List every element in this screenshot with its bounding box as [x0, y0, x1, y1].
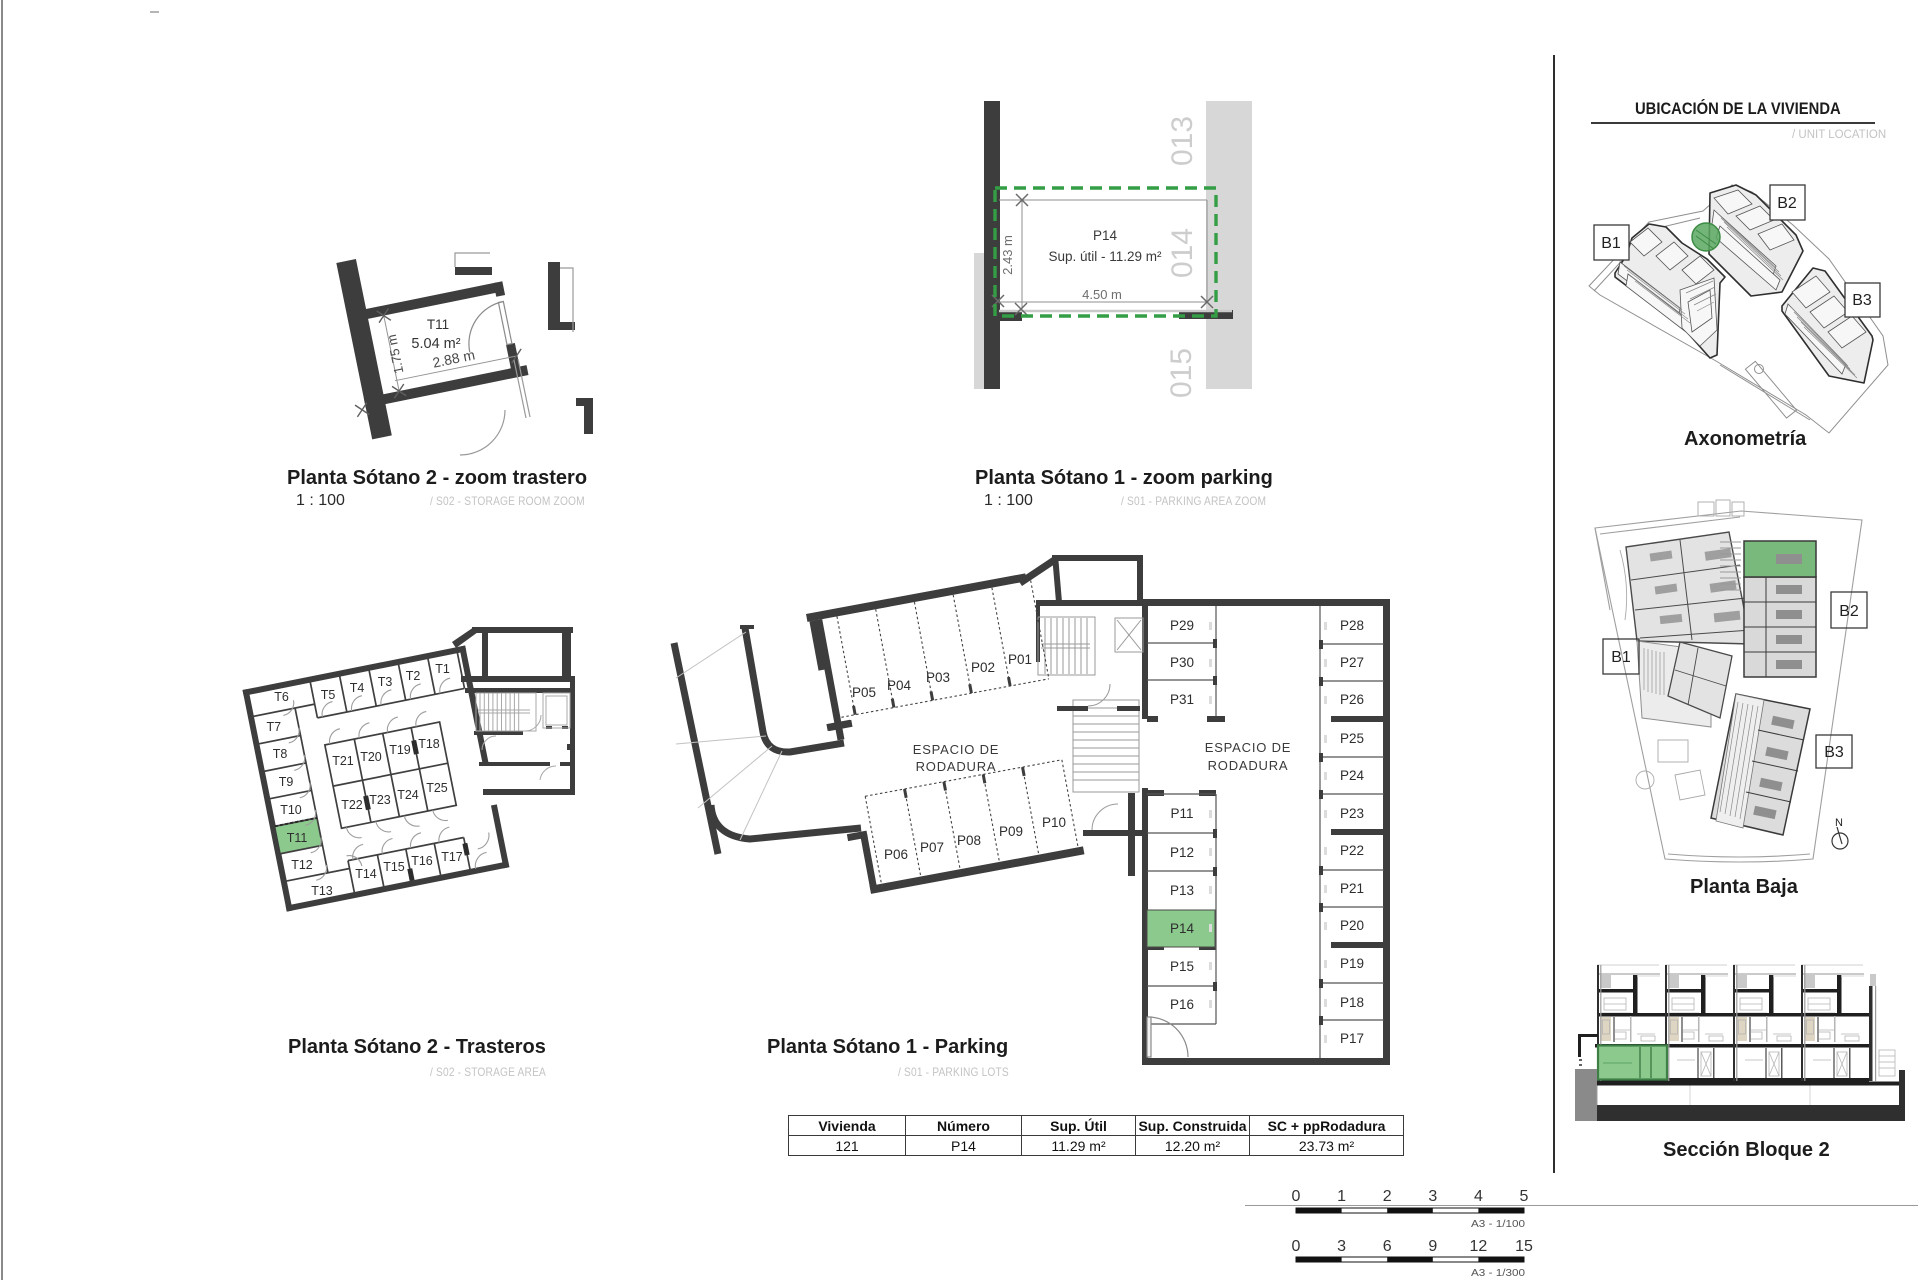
svg-text:T2: T2: [406, 669, 421, 683]
svg-text:5.04 m²: 5.04 m²: [411, 336, 460, 352]
svg-text:1.75 m: 1.75 m: [384, 333, 407, 375]
svg-text:P01: P01: [1008, 652, 1032, 667]
svg-text:T11: T11: [427, 317, 449, 332]
svg-text:P07: P07: [920, 840, 944, 855]
svg-text:T6: T6: [274, 690, 289, 704]
svg-text:T11: T11: [287, 831, 308, 845]
svg-text:P30: P30: [1170, 655, 1194, 670]
svg-text:12: 12: [1470, 1238, 1488, 1255]
svg-text:T22: T22: [341, 798, 363, 812]
svg-text:5: 5: [1520, 1188, 1529, 1205]
svg-text:T15: T15: [383, 860, 405, 874]
svg-text:P19: P19: [1340, 956, 1364, 971]
svg-text:2: 2: [1383, 1188, 1392, 1205]
svg-text:P23: P23: [1340, 806, 1364, 821]
svg-text:T10: T10: [280, 803, 302, 817]
svg-text:P14: P14: [1093, 228, 1118, 243]
svg-text:T5: T5: [321, 688, 336, 702]
svg-text:4.50 m: 4.50 m: [1082, 287, 1122, 302]
svg-text:P27: P27: [1340, 655, 1364, 670]
svg-text:T19: T19: [389, 743, 411, 757]
svg-text:P26: P26: [1340, 692, 1364, 707]
svg-text:P10: P10: [1042, 815, 1066, 830]
svg-text:T9: T9: [279, 775, 294, 789]
svg-text:A3 - 1/100: A3 - 1/100: [1471, 1218, 1525, 1230]
svg-text:P11: P11: [1170, 806, 1193, 821]
svg-text:P14: P14: [1170, 921, 1195, 936]
svg-text:0: 0: [1292, 1238, 1301, 1255]
svg-text:B1: B1: [1601, 235, 1621, 252]
svg-text:N: N: [1835, 817, 1843, 829]
svg-text:P06: P06: [884, 847, 908, 862]
svg-text:P08: P08: [957, 833, 981, 848]
svg-text:B3: B3: [1824, 744, 1844, 761]
svg-text:T13: T13: [311, 884, 333, 898]
svg-text:T3: T3: [378, 675, 393, 689]
svg-text:T25: T25: [426, 781, 448, 795]
svg-text:T17: T17: [441, 850, 463, 864]
svg-text:P25: P25: [1340, 731, 1364, 746]
svg-text:T14: T14: [355, 867, 377, 881]
svg-text:T23: T23: [369, 793, 391, 807]
svg-text:9: 9: [1428, 1238, 1437, 1255]
svg-text:P21: P21: [1340, 881, 1364, 896]
svg-text:P04: P04: [887, 678, 912, 693]
svg-text:T16: T16: [411, 854, 433, 868]
svg-text:T4: T4: [350, 681, 365, 695]
svg-text:RODADURA: RODADURA: [916, 759, 997, 774]
svg-text:1: 1: [1337, 1188, 1346, 1205]
svg-text:ESPACIO DE: ESPACIO DE: [1205, 740, 1292, 755]
svg-text:P16: P16: [1170, 997, 1194, 1012]
svg-text:T8: T8: [273, 747, 288, 761]
svg-text:3: 3: [1428, 1188, 1437, 1205]
svg-text:ESPACIO DE: ESPACIO DE: [913, 742, 1000, 757]
svg-text:RODADURA: RODADURA: [1208, 758, 1289, 773]
svg-text:6: 6: [1383, 1238, 1392, 1255]
svg-text:T1: T1: [435, 662, 450, 676]
svg-text:P31: P31: [1170, 692, 1194, 707]
svg-text:T20: T20: [360, 750, 382, 764]
svg-text:T12: T12: [291, 858, 313, 872]
svg-text:15: 15: [1515, 1238, 1533, 1255]
svg-text:T24: T24: [397, 788, 419, 802]
svg-text:P02: P02: [971, 660, 995, 675]
svg-text:B3: B3: [1852, 292, 1872, 309]
svg-text:2.43 m: 2.43 m: [1000, 235, 1015, 275]
svg-text:P09: P09: [999, 824, 1023, 839]
svg-text:P15: P15: [1170, 959, 1194, 974]
svg-text:T7: T7: [267, 720, 282, 734]
svg-text:P18: P18: [1340, 995, 1364, 1010]
svg-text:T18: T18: [418, 737, 440, 751]
svg-text:3: 3: [1337, 1238, 1346, 1255]
svg-text:015: 015: [1165, 348, 1198, 398]
svg-text:Sup. útil - 11.29 m²: Sup. útil - 11.29 m²: [1048, 249, 1162, 264]
svg-text:P20: P20: [1340, 918, 1364, 933]
svg-text:B2: B2: [1777, 195, 1797, 212]
svg-text:P03: P03: [926, 670, 950, 685]
svg-text:P13: P13: [1170, 883, 1194, 898]
svg-text:T21: T21: [332, 754, 354, 768]
svg-text:0: 0: [1292, 1188, 1301, 1205]
svg-text:P05: P05: [852, 685, 876, 700]
svg-text:A3 - 1/300: A3 - 1/300: [1471, 1267, 1525, 1279]
svg-text:B1: B1: [1611, 649, 1631, 666]
svg-text:P29: P29: [1170, 618, 1194, 633]
svg-text:4: 4: [1474, 1188, 1483, 1205]
svg-text:013: 013: [1166, 116, 1199, 166]
svg-text:P12: P12: [1170, 845, 1194, 860]
svg-text:P28: P28: [1340, 618, 1364, 633]
svg-text:P24: P24: [1340, 768, 1365, 783]
svg-text:P22: P22: [1340, 843, 1364, 858]
svg-text:P17: P17: [1340, 1031, 1364, 1046]
svg-text:014: 014: [1166, 228, 1199, 278]
svg-text:B2: B2: [1839, 603, 1859, 620]
